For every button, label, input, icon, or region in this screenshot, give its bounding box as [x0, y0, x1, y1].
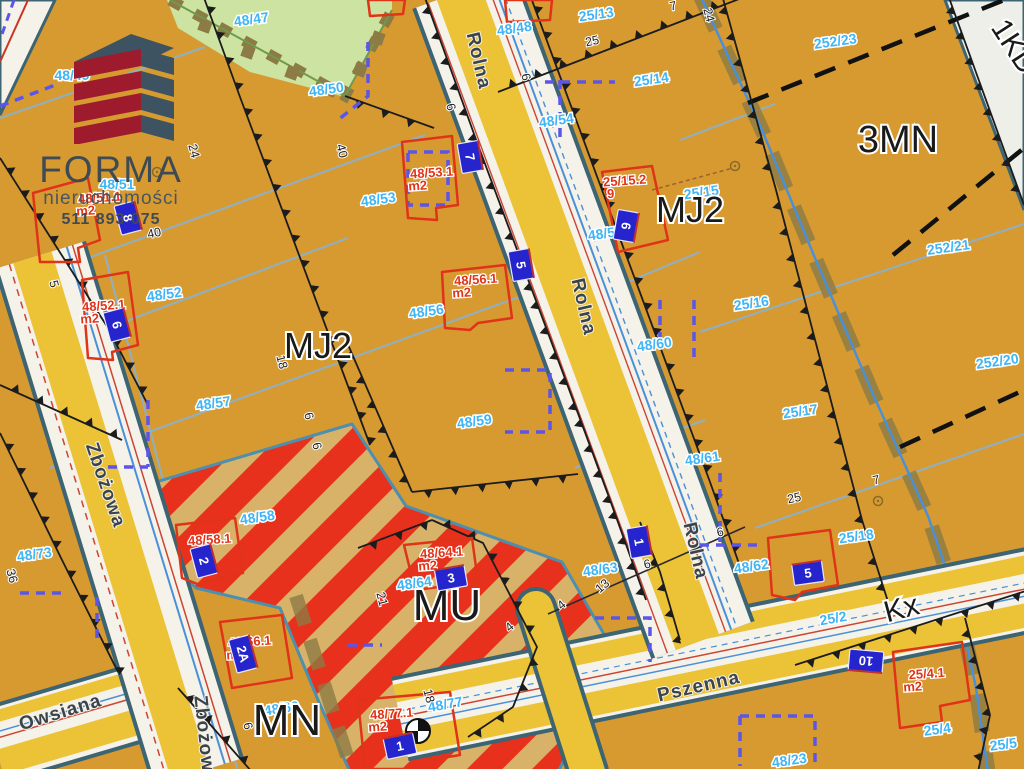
- zone-label: MJ2: [284, 325, 352, 366]
- measurement-label: 40: [146, 225, 163, 242]
- zone-label: MJ2: [656, 189, 724, 230]
- address-marker[interactable]: 6: [613, 209, 639, 242]
- zoning-map-screenshot: 48/4748/4948/5048/4825/13252/2325/1448/5…: [0, 0, 1024, 769]
- measurement-label: 25: [786, 490, 803, 507]
- zone-label: MN: [253, 696, 321, 745]
- address-marker[interactable]: 5: [792, 561, 825, 586]
- building-label-unit: m2: [408, 177, 428, 193]
- zoning-map-canvas[interactable]: 48/4748/4948/5048/4825/13252/2325/1448/5…: [0, 0, 1024, 769]
- zone-label: 3MN: [858, 119, 938, 161]
- address-marker[interactable]: 7: [457, 140, 483, 173]
- measurement-label: 25: [584, 33, 601, 50]
- building-label-unit: m2: [76, 202, 96, 218]
- address-marker[interactable]: 10: [848, 649, 884, 673]
- building-label-unit: m2: [80, 310, 100, 326]
- building-label-unit: m2: [452, 284, 472, 300]
- building-label-unit: 9: [607, 186, 615, 201]
- parcel-label: 48/49: [54, 67, 89, 83]
- address-marker[interactable]: 5: [508, 248, 534, 281]
- address-marker[interactable]: 3: [434, 565, 467, 591]
- building-label-unit: m2: [903, 678, 923, 694]
- building-label-unit: m2: [368, 718, 388, 734]
- address-marker[interactable]: 1: [626, 525, 652, 558]
- address-marker-number: 10: [858, 653, 874, 669]
